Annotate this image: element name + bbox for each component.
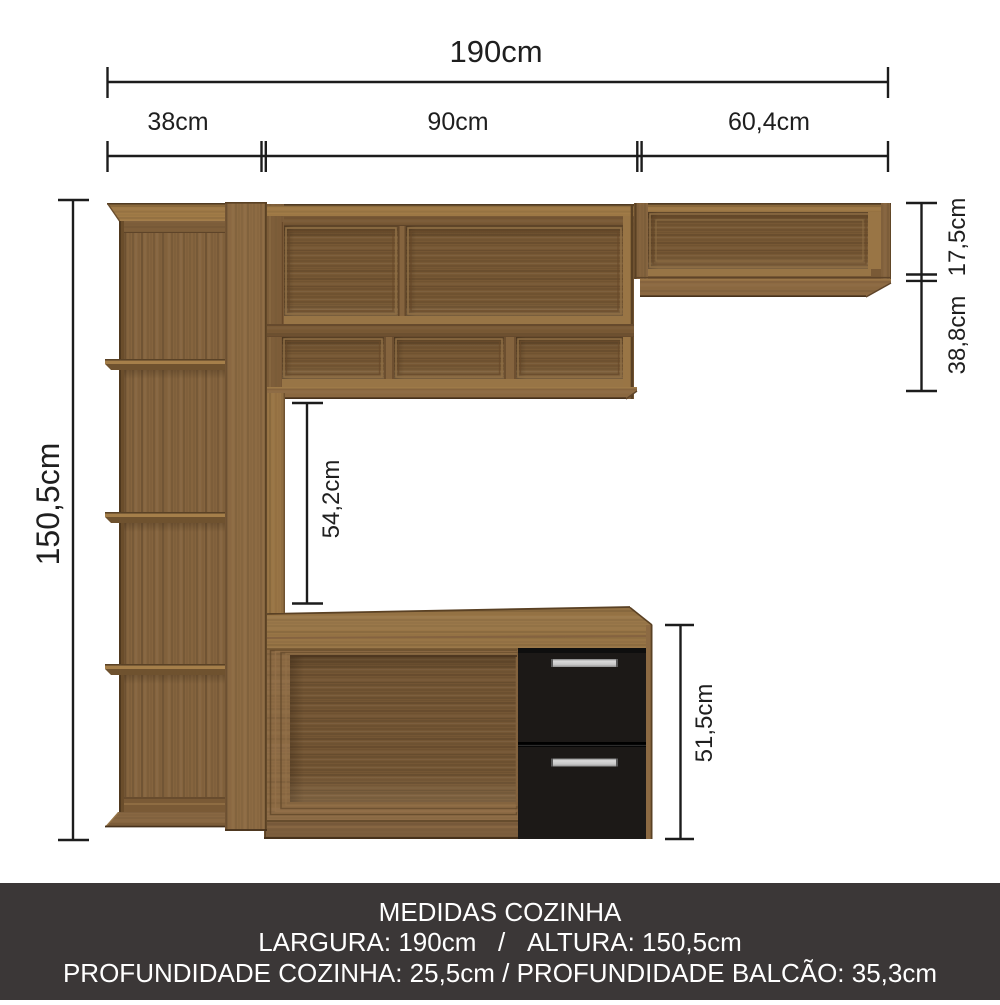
svg-text:PROFUNDIDADE COZINHA: 25,5cm /: PROFUNDIDADE COZINHA: 25,5cm / PROFUNDID… (63, 958, 937, 988)
svg-text:51,5cm: 51,5cm (691, 684, 718, 763)
svg-text:MEDIDAS COZINHA: MEDIDAS COZINHA (379, 897, 622, 927)
svg-text:90cm: 90cm (427, 108, 488, 136)
svg-text:60,4cm: 60,4cm (728, 108, 810, 136)
svg-text:38cm: 38cm (147, 108, 208, 136)
svg-text:17,5cm: 17,5cm (944, 198, 971, 277)
svg-text:LARGURA: 190cm / ALTURA: 1: LARGURA: 190cm / ALTURA: 150,5cm (258, 927, 742, 957)
svg-text:54,2cm: 54,2cm (318, 460, 345, 539)
svg-text:190cm: 190cm (449, 34, 542, 69)
svg-text:150,5cm: 150,5cm (30, 443, 66, 566)
svg-text:38,8cm: 38,8cm (944, 296, 971, 375)
